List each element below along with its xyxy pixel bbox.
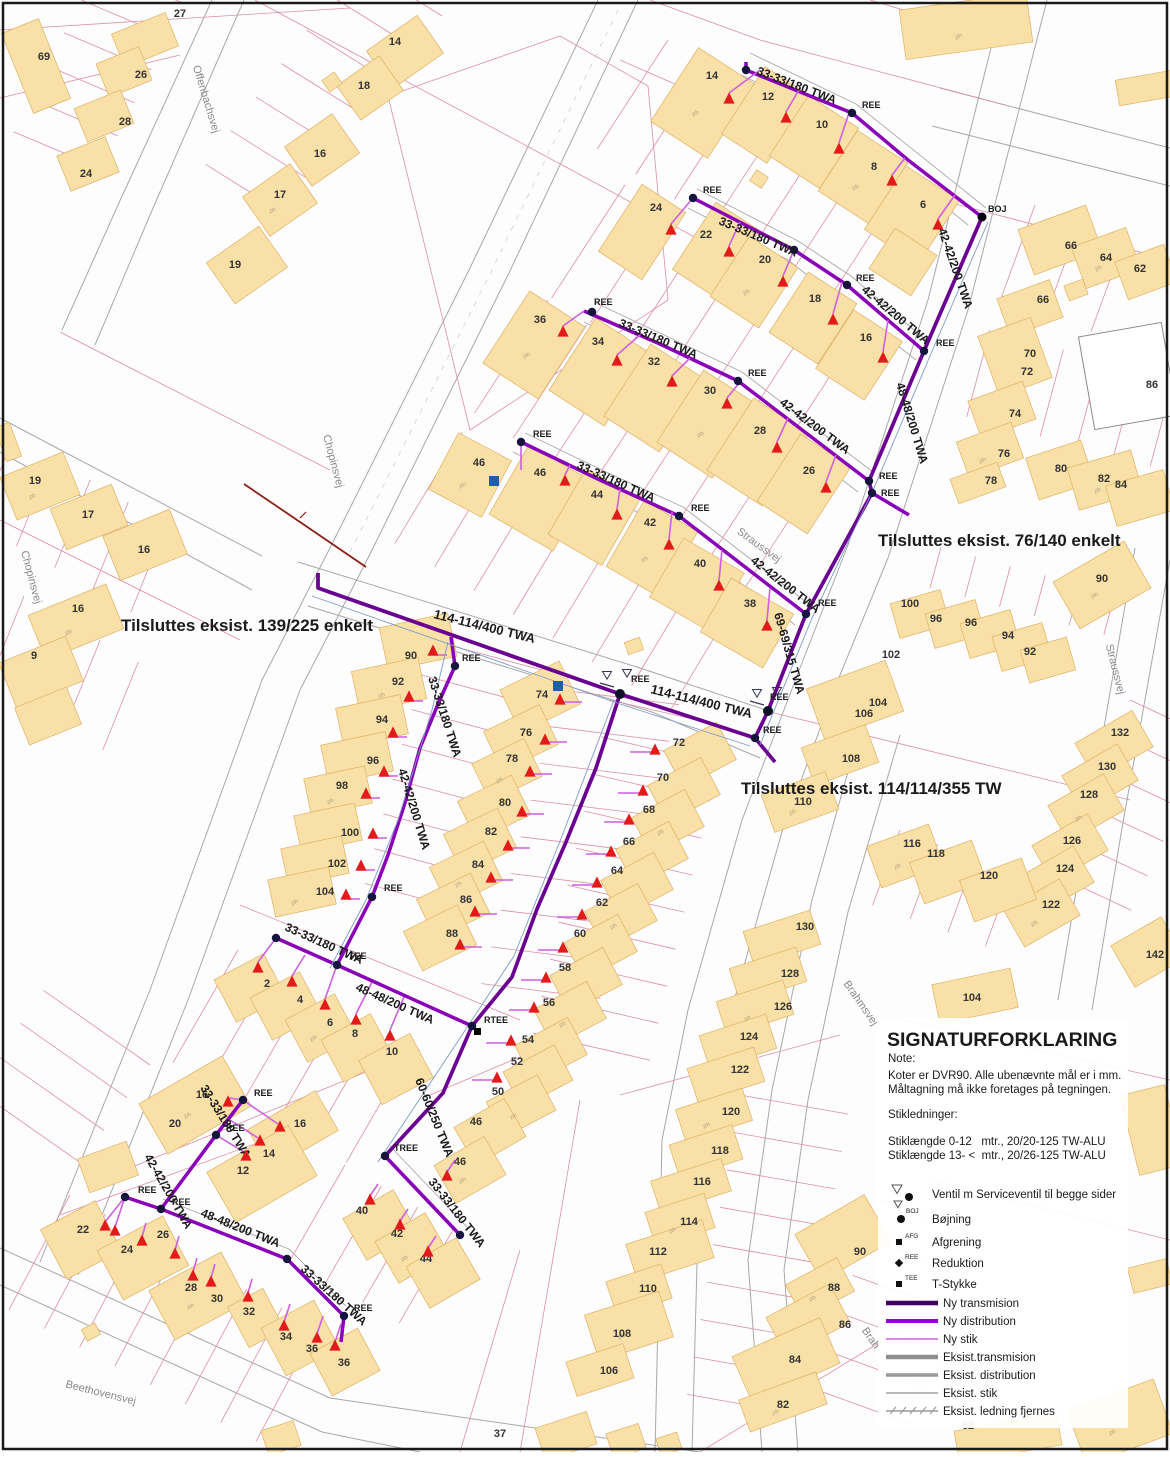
svg-text:82: 82 [777,1399,789,1411]
svg-text:46: 46 [534,467,546,479]
svg-text:24: 24 [80,168,93,180]
svg-text:62: 62 [1134,263,1146,275]
svg-text:Ny distribution: Ny distribution [943,1316,1016,1328]
svg-text:14: 14 [389,36,402,48]
svg-text:Afgrening: Afgrening [932,1237,981,1249]
svg-text:TREE: TREE [394,1143,418,1153]
svg-text:REE: REE [691,503,710,513]
svg-text:16: 16 [138,544,150,556]
svg-text:118: 118 [927,848,945,860]
svg-text:12: 12 [237,1165,249,1177]
svg-text:100: 100 [901,598,919,610]
svg-text:108: 108 [613,1328,631,1340]
svg-text:94: 94 [376,714,389,726]
svg-text:Måltagning må ikke foretages p: Måltagning må ikke foretages på tegninge… [888,1084,1111,1096]
svg-text:68: 68 [643,804,655,816]
svg-text:Note:: Note: [888,1053,916,1065]
svg-text:Ventil m Serviceventil til beg: Ventil m Serviceventil til begge sider [932,1189,1116,1201]
svg-text:40: 40 [356,1205,368,1217]
svg-text:REE: REE [770,692,789,702]
svg-text:Eksist.transmision: Eksist.transmision [943,1352,1036,1364]
svg-text:REE: REE [856,273,875,283]
svg-text:Koter er DVR90. Alle ubenævnte: Koter er DVR90. Alle ubenævnte mål er i … [888,1070,1121,1082]
svg-text:14: 14 [706,70,719,82]
svg-text:12: 12 [762,91,774,103]
svg-text:116: 116 [903,838,921,850]
svg-text:52: 52 [511,1056,523,1068]
svg-text:96: 96 [367,755,379,767]
svg-text:27: 27 [174,8,186,20]
svg-text:34: 34 [592,336,605,348]
svg-text:70: 70 [657,772,669,784]
svg-text:14: 14 [263,1148,276,1160]
svg-text:46: 46 [470,1116,482,1128]
svg-text:90: 90 [405,650,417,662]
svg-text:76: 76 [520,727,532,739]
svg-text:118: 118 [711,1145,729,1157]
svg-text:REE: REE [862,100,881,110]
svg-text:44: 44 [591,489,604,501]
svg-text:102: 102 [882,649,900,661]
svg-text:98: 98 [336,780,348,792]
svg-text:REE: REE [631,674,650,684]
svg-text:REE: REE [818,598,837,608]
svg-text:106: 106 [600,1365,618,1377]
svg-text:6: 6 [920,199,926,211]
svg-text:SIGNATURFORKLARING: SIGNATURFORKLARING [887,1029,1117,1051]
svg-text:30: 30 [704,385,716,397]
svg-text:132: 132 [1111,727,1129,739]
svg-text:9: 9 [31,650,37,662]
svg-text:88: 88 [446,928,458,940]
svg-text:19: 19 [229,259,241,271]
svg-text:90: 90 [854,1246,866,1258]
svg-text:Eksist. stik: Eksist. stik [943,1388,998,1400]
svg-text:128: 128 [1080,789,1098,801]
svg-text:AFG: AFG [905,1233,918,1240]
svg-text:REE: REE [881,488,900,498]
svg-text:142: 142 [1146,949,1164,961]
svg-text:66: 66 [1037,294,1049,306]
svg-text:BOJ: BOJ [906,1208,919,1215]
svg-text:110: 110 [639,1283,657,1295]
svg-text:120: 120 [980,870,998,882]
svg-text:16: 16 [314,148,326,160]
svg-text:TEE: TEE [905,1275,918,1282]
svg-text:50: 50 [492,1086,504,1098]
svg-text:REE: REE [905,1254,919,1261]
svg-text:58: 58 [559,962,571,974]
svg-text:84: 84 [789,1354,802,1366]
svg-text:Reduktion: Reduktion [932,1258,984,1270]
svg-text:122: 122 [1042,899,1060,911]
svg-text:86: 86 [839,1319,851,1331]
svg-text:22: 22 [77,1224,89,1236]
svg-text:96: 96 [930,613,942,625]
svg-text:112: 112 [649,1246,667,1258]
svg-text:88: 88 [828,1282,840,1294]
svg-text:Eksist. ledning fjernes: Eksist. ledning fjernes [943,1406,1055,1418]
svg-text:56: 56 [543,997,555,1009]
svg-text:26: 26 [135,69,147,81]
svg-text:106: 106 [855,708,873,720]
svg-text:82: 82 [485,826,497,838]
svg-text:94: 94 [1002,630,1015,642]
svg-text:28: 28 [754,425,766,437]
svg-text:37: 37 [494,1428,506,1440]
svg-text:10: 10 [816,119,828,131]
svg-text:69: 69 [38,51,50,63]
svg-text:Stiklængde 0-12 mtr., 20/20-: Stiklængde 0-12 mtr., 20/20-125 TW-ALU [888,1136,1106,1148]
svg-text:26: 26 [157,1229,169,1241]
svg-text:Tilsluttes eksist. 76/140 enke: Tilsluttes eksist. 76/140 enkelt [878,531,1121,550]
svg-text:84: 84 [472,859,485,871]
svg-text:18: 18 [809,293,821,305]
svg-text:74: 74 [536,689,549,701]
svg-text:T-Stykke: T-Stykke [932,1279,977,1291]
svg-text:REE: REE [533,429,552,439]
svg-text:36: 36 [338,1357,350,1369]
svg-text:4: 4 [297,994,304,1006]
svg-text:126: 126 [1063,835,1081,847]
svg-text:REE: REE [879,471,898,481]
svg-text:60: 60 [574,928,586,940]
svg-text:130: 130 [1098,761,1116,773]
svg-text:64: 64 [611,865,624,877]
svg-text:20: 20 [759,254,771,266]
svg-text:Bøjning: Bøjning [932,1214,971,1226]
svg-text:84: 84 [1115,479,1128,491]
svg-text:74: 74 [1009,408,1022,420]
svg-text:REE: REE [462,653,481,663]
svg-text:54: 54 [522,1034,535,1046]
svg-text:102: 102 [328,858,346,870]
svg-text:16: 16 [860,332,872,344]
svg-text:30: 30 [211,1293,223,1305]
svg-text:124: 124 [740,1031,759,1043]
svg-text:19: 19 [29,475,41,487]
svg-text:36: 36 [306,1343,318,1355]
svg-text:Stikledninger:: Stikledninger: [888,1109,958,1121]
svg-text:REE: REE [254,1088,273,1098]
svg-text:82: 82 [1098,473,1110,485]
svg-text:Tilsluttes eksist. 139/225 enk: Tilsluttes eksist. 139/225 enkelt [121,616,373,635]
svg-text:92: 92 [392,676,404,688]
svg-text:78: 78 [985,475,997,487]
svg-text:20: 20 [169,1118,181,1130]
svg-text:REE: REE [138,1185,157,1195]
svg-text:130: 130 [796,921,814,933]
svg-text:42: 42 [391,1228,403,1240]
svg-text:34: 34 [280,1331,293,1343]
svg-text:122: 122 [731,1064,749,1076]
svg-text:24: 24 [650,202,663,214]
svg-text:24: 24 [121,1244,134,1256]
svg-text:38: 38 [744,598,756,610]
svg-text:72: 72 [1021,366,1033,378]
svg-text:16: 16 [294,1118,306,1130]
svg-text:REE: REE [703,185,722,195]
svg-text:Ny stik: Ny stik [943,1334,978,1346]
svg-text:REE: REE [384,883,403,893]
svg-text:17: 17 [82,509,94,521]
svg-text:RTEE: RTEE [484,1015,508,1025]
svg-text:46: 46 [454,1156,466,1168]
svg-text:90: 90 [1096,573,1108,585]
svg-text:28: 28 [119,116,131,128]
svg-text:66: 66 [1065,240,1077,252]
svg-text:62: 62 [596,897,608,909]
svg-text:124: 124 [1056,863,1075,875]
svg-text:100: 100 [341,827,359,839]
svg-text:116: 116 [693,1176,711,1188]
svg-text:22: 22 [700,229,712,241]
svg-text:Tilsluttes eksist. 114/114/355: Tilsluttes eksist. 114/114/355 TW [741,779,1002,798]
svg-text:REE: REE [936,338,955,348]
svg-text:104: 104 [963,992,982,1004]
svg-text:REE: REE [763,725,782,735]
svg-text:Stiklængde 13- < mtr., 20/26-: Stiklængde 13- < mtr., 20/26-125 TW-ALU [888,1150,1106,1162]
svg-text:86: 86 [1146,379,1158,391]
svg-text:76: 76 [998,448,1010,460]
svg-text:2: 2 [264,978,270,990]
svg-text:40: 40 [694,558,706,570]
svg-text:80: 80 [1055,463,1067,475]
svg-text:80: 80 [499,797,511,809]
svg-text:108: 108 [842,753,860,765]
svg-text:120: 120 [722,1106,740,1118]
svg-text:8: 8 [871,161,877,173]
svg-text:72: 72 [673,737,685,749]
svg-text:BOJ: BOJ [988,204,1007,214]
svg-text:46: 46 [473,457,485,469]
svg-text:Eksist. distribution: Eksist. distribution [943,1370,1036,1382]
svg-text:36: 36 [534,314,546,326]
svg-text:REE: REE [594,297,613,307]
svg-text:REE: REE [748,368,767,378]
svg-text:28: 28 [185,1282,197,1294]
svg-text:17: 17 [274,189,286,201]
svg-text:Ny transmision: Ny transmision [943,1298,1019,1310]
svg-text:32: 32 [648,356,660,368]
svg-text:6: 6 [327,1017,333,1029]
svg-text:64: 64 [1100,252,1113,264]
svg-text:32: 32 [243,1306,255,1318]
svg-text:26: 26 [803,465,815,477]
svg-text:114: 114 [680,1216,699,1228]
svg-text:78: 78 [506,753,518,765]
svg-text:126: 126 [774,1001,792,1013]
svg-text:10: 10 [386,1046,398,1058]
svg-text:86: 86 [460,894,472,906]
svg-text:42: 42 [644,517,656,529]
svg-text:92: 92 [1024,646,1036,658]
svg-text:96: 96 [965,617,977,629]
svg-text:16: 16 [72,603,84,615]
svg-text:70: 70 [1024,348,1036,360]
svg-text:18: 18 [358,80,370,92]
svg-text:8: 8 [352,1028,358,1040]
svg-text:128: 128 [781,968,799,980]
svg-text:66: 66 [623,836,635,848]
svg-text:104: 104 [316,886,335,898]
